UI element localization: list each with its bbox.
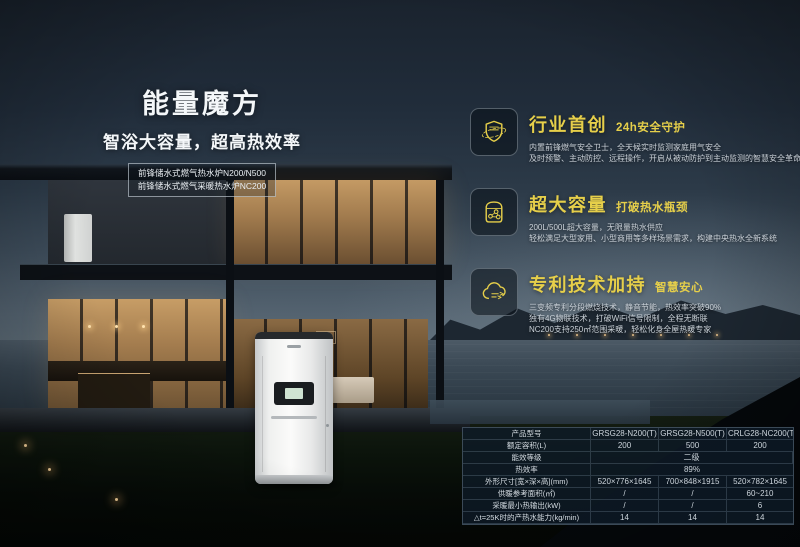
feature-technology: 专利技术加持 智慧安心 三变频专利分段燃烧技术，静音节能，热效率突破90% 独有… (470, 268, 721, 335)
spec-cell: 200 (727, 440, 793, 452)
feature-safety: 行业首创 24h安全守护 内置前锋燃气安全卫士，全天候实时监测家庭用气安全 及时… (470, 108, 800, 164)
feature-tagline: 智慧安心 (655, 279, 703, 295)
spec-row-label: 供暖参考面积(㎡) (463, 488, 591, 500)
panel-seam (325, 356, 326, 472)
spec-row-label: 额定容积(L) (463, 440, 591, 452)
spec-cell-span: 89% (591, 464, 793, 476)
feature-text: 超大容量 打破热水瓶颈 200L/500L超大容量，无限量热水供应 轻松满足大型… (529, 188, 777, 244)
feature-capacity: 超大容量 打破热水瓶颈 200L/500L超大容量，无限量热水供应 轻松满足大型… (470, 188, 777, 244)
house-pillar (226, 180, 234, 412)
feature-heading: 专利技术加持 (529, 271, 646, 297)
product-label (271, 416, 317, 419)
feature-desc-line: 独有4G物联技术，打破WiFi信号限制，全程无断联 (529, 313, 721, 324)
floor-slab (20, 264, 452, 280)
cloud-link-icon (470, 268, 518, 316)
spec-row-label: 能效等级 (463, 452, 591, 464)
pendant-lights (88, 325, 145, 328)
house-pillar (436, 180, 444, 420)
spec-cell: GRSG28-N200(T) (591, 428, 659, 440)
pendant-light (115, 325, 118, 328)
spec-cell: 500 (659, 440, 727, 452)
brand-logo (287, 345, 301, 348)
house-lower-floor (40, 279, 444, 411)
spec-cell: GRSG28-N500(T) (659, 428, 727, 440)
control-panel (274, 382, 314, 405)
spec-cell: 520×782×1645 (727, 476, 793, 488)
garden-light (24, 444, 27, 447)
kitchen-island (78, 373, 150, 408)
panel-seam (262, 356, 263, 472)
spec-cell: 60~210 (727, 488, 793, 500)
feature-heading: 行业首创 (529, 111, 607, 137)
house-scene (0, 160, 470, 432)
product-top-cap (255, 332, 333, 339)
spec-cell: 200 (591, 440, 659, 452)
kitchen-window (48, 299, 228, 409)
spec-cell: 700×848×1915 (659, 476, 727, 488)
feature-desc-line: 轻松满足大型家用、小型商用等多样场景需求，构建中央热水全新系统 (529, 233, 777, 244)
feature-desc-line: 200L/500L超大容量，无限量热水供应 (529, 222, 777, 233)
garden-light (115, 498, 118, 501)
feature-desc-line: NC200支持250㎡范围采暖，轻松化身全屋热暖专家 (529, 324, 721, 335)
terrace-deck (0, 408, 470, 432)
product-unit (255, 332, 333, 484)
shield-orbit-icon (470, 108, 518, 156)
feature-desc-line: 及时预警、主动防控、远程操作，开启从被动防护到主动监测的智慧安全革命 (529, 153, 800, 164)
spec-row-label: 外形尺寸[宽×深×高](mm) (463, 476, 591, 488)
spec-cell: / (659, 488, 727, 500)
spec-row-label: 产品型号 (463, 428, 591, 440)
spec-cell: / (591, 500, 659, 512)
spec-cell: / (659, 500, 727, 512)
terrace-appliance (64, 214, 92, 262)
spec-cell: 14 (591, 512, 659, 524)
feature-text: 行业首创 24h安全守护 内置前锋燃气安全卫士，全天候实时监测家庭用气安全 及时… (529, 108, 800, 164)
spec-row-label: 热效率 (463, 464, 591, 476)
feature-desc-line: 内置前锋燃气安全卫士，全天候实时监测家庭用气安全 (529, 142, 800, 153)
infinity-pool (430, 400, 650, 424)
pendant-light (142, 325, 145, 328)
model-line-1: 前锋储水式燃气热水炉N200/N500 (138, 167, 266, 180)
feature-tagline: 24h安全守护 (616, 119, 685, 135)
model-list-box: 前锋储水式燃气热水炉N200/N500 前锋储水式燃气采暖热水炉NC200 (128, 163, 276, 197)
spec-cell: / (591, 488, 659, 500)
display-screen (285, 388, 303, 399)
product-base (255, 475, 333, 484)
side-button (326, 424, 329, 427)
spec-cell-span: 二级 (591, 452, 793, 464)
spec-cell: CRLG28-NC200(T) (727, 428, 793, 440)
spec-row-label: 采暖最小热输出(kW) (463, 500, 591, 512)
poster-canvas: 能量魔方 智浴大容量，超高热效率 前锋储水式燃气热水炉N200/N500 前锋储… (0, 0, 800, 547)
feature-heading: 超大容量 (529, 191, 607, 217)
pendant-light (88, 325, 91, 328)
spec-table: 产品型号 GRSG28-N200(T) GRSG28-N500(T) CRLG2… (462, 427, 794, 525)
headline-block: 能量魔方 智浴大容量，超高热效率 前锋储水式燃气热水炉N200/N500 前锋储… (88, 82, 316, 197)
page-title: 能量魔方 (88, 82, 316, 121)
spec-cell: 14 (727, 512, 793, 524)
spec-cell: 14 (659, 512, 727, 524)
feature-text: 专利技术加持 智慧安心 三变频专利分段燃烧技术，静音节能，热效率突破90% 独有… (529, 268, 721, 335)
spec-cell: 520×776×1645 (591, 476, 659, 488)
page-subtitle: 智浴大容量，超高热效率 (88, 128, 316, 153)
garden-light (48, 468, 51, 471)
feature-desc-line: 三变频专利分段燃烧技术，静音节能，热效率突破90% (529, 302, 721, 313)
spec-row-label: △t=25K时的产热水能力(kg/min) (463, 512, 591, 524)
spec-cell: 6 (727, 500, 793, 512)
model-line-2: 前锋储水式燃气采暖热水炉NC200 (138, 180, 266, 193)
water-tank-icon (470, 188, 518, 236)
feature-tagline: 打破热水瓶颈 (616, 199, 688, 215)
